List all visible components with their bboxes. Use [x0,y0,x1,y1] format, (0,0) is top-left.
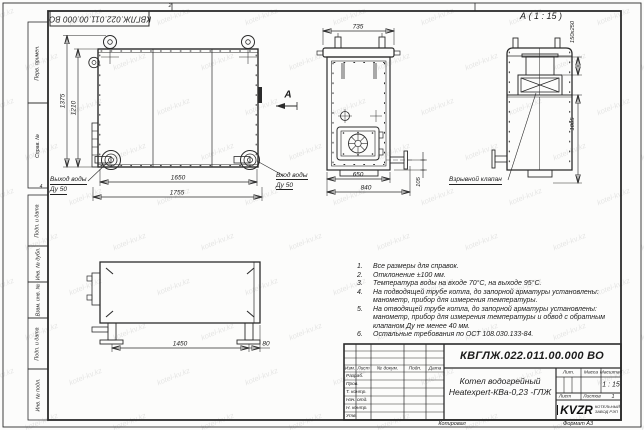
note-text: Все размеры для справок. [373,263,459,270]
detail-a-title: А ( 1 : 15 ) [520,11,562,21]
side-view [317,28,427,196]
explosion-valve-label: Взрывной клапан [449,176,502,185]
tb-product-name-line1: Котел водогрейный [460,376,541,386]
margin-label-text: Инв. № дубл. [35,248,41,281]
margin-label-text: Взам. инв. № [35,284,41,317]
margin-label-text: Подп. и дата [35,204,41,237]
note-number: 2. [357,272,363,281]
margin-label-text: Подп. и дата [35,327,41,360]
dim-front-width-outer: 1755 [170,190,184,197]
note-item: 3.Температура воды на входе 70°С, на вых… [350,280,626,289]
dim-front-height-inner: 1210 [71,101,78,115]
margin-label-text: Справ. № [35,133,41,157]
footer-copied-by: Копировал [438,421,465,427]
tb-row-prov: Пров. [346,382,359,387]
dim-front-height-outer: 1375 [59,94,66,108]
kvzr-logo-caption: КОТЕЛЬНЫЙ ЗАВОД РЭП [595,405,620,414]
note-number: 4. [357,289,363,298]
tb-row-tkontr: Т. контр. [346,390,367,395]
note-item: 2.Отклонение ±100 мм. [350,272,626,281]
dim-side-top: 735 [353,23,364,30]
note-number: 3. [357,280,363,289]
kvzr-logo-text: KVZR [560,403,593,417]
margin-label-podp-data-1: Подп. и дата [28,195,48,246]
kvzr-logo-emblem-icon [557,405,558,415]
tb-scale-label: Масштаб [600,370,622,375]
dim-front-width-inner: 1650 [171,175,185,182]
note-item: 4.На подводящей трубе котла, до запорной… [350,289,626,306]
dim-detail-valve: 150x250 [570,21,576,43]
top-view [87,262,270,352]
kvzr-logo: KVZR КОТЕЛЬНЫЙ ЗАВОД РЭП [557,401,620,418]
drawing-sheet: kotel-kv.kzkotel-kv.kzkotel-kv.kzkotel-k… [0,0,644,430]
tb-row-utv: Утв. [346,414,357,419]
water-outlet-size: Ду 50 [50,186,67,195]
tb-col-dokum: № докум. [377,366,398,371]
tb-doc-number: КВГЛЖ.022.011.00.000 ВО [460,350,604,362]
tb-row-nachotd: Нач. отд. [346,398,368,403]
tb-row-razrab: Разраб. [346,374,363,379]
dim-side-pipe: 105 [416,177,422,187]
note-number: 5. [357,306,363,315]
tb-product-name-line2: Heatexpert-КВа-0,23 -ГЛЖ [449,387,551,397]
dim-side-inner: 650 [353,172,364,179]
water-inlet-label: Вход воды [276,172,308,181]
note-text: Отклонение ±100 мм. [373,272,446,279]
tb-col-data: Дата [429,366,442,371]
tb-sheet-label: Лист [559,394,571,399]
dim-detail-height: 1005 [570,118,576,131]
note-text: Температура воды на входе 70°С, на выход… [373,280,541,287]
note-number: 6. [357,331,363,340]
note-number: 1. [357,263,363,272]
doc-number-flipped: КВГЛЖ.022.011.00.000 ВО [48,14,150,23]
water-inlet-size: Ду 50 [276,182,293,191]
margin-label-vzam-inv: Взам. инв. № [28,282,48,318]
tb-col-izm: Изм. [345,366,355,371]
margin-label-text: Перв. примен. [35,45,41,80]
dim-topview-offset: 80 [262,340,269,347]
dim-topview-width: 1450 [173,340,187,347]
note-item: 1.Все размеры для справок. [350,263,626,272]
section-arrow-letter: А [284,90,291,101]
tb-row-nkontr: Н. контр. [346,406,368,411]
note-text: На отводящей трубе котла, до запорной ар… [373,306,605,330]
tb-scale-value: 1 : 15 [602,382,620,389]
note-text: Остальные требования по ОСТ 108.030.133-… [373,331,533,338]
drawing-linework [0,0,644,430]
dim-side-outer: 840 [361,185,372,192]
tb-mass-label: Масса [584,370,598,375]
tb-lit-label: Лит. [563,370,574,375]
note-item: 5.На отводящей трубе котла, до запорной … [350,306,626,332]
margin-label-inv-dubl: Инв. № дубл. [28,246,48,282]
margin-label-perv-primen: Перв. примен. [28,22,48,103]
kvzr-caption-line2: ЗАВОД РЭП [595,410,620,414]
tb-col-list: Лист [357,366,369,371]
margin-label-inv-podl: Инв. № подл. [28,369,48,420]
detail-a-view [492,38,582,183]
footer-format: Формат А3 [563,421,593,427]
note-text: На подводящей трубе котла, до запорной а… [373,289,599,305]
margin-label-sprav-no: Справ. № [28,103,48,188]
notes-block: 1.Все размеры для справок. 2.Отклонение … [350,263,626,340]
tb-sheets-value: 1 [611,394,614,400]
note-item: 6.Остальные требования по ОСТ 108.030.13… [350,331,626,340]
tb-col-podp: Подп. [409,366,422,371]
water-outlet-label: Выход воды [50,176,87,185]
margin-label-podp-data-2: Подп. и дата [28,318,48,369]
margin-label-text: Инв. № подл. [35,378,41,411]
zone-mark-top: 2 [169,3,172,9]
tb-sheets-label: Листов [583,394,600,399]
